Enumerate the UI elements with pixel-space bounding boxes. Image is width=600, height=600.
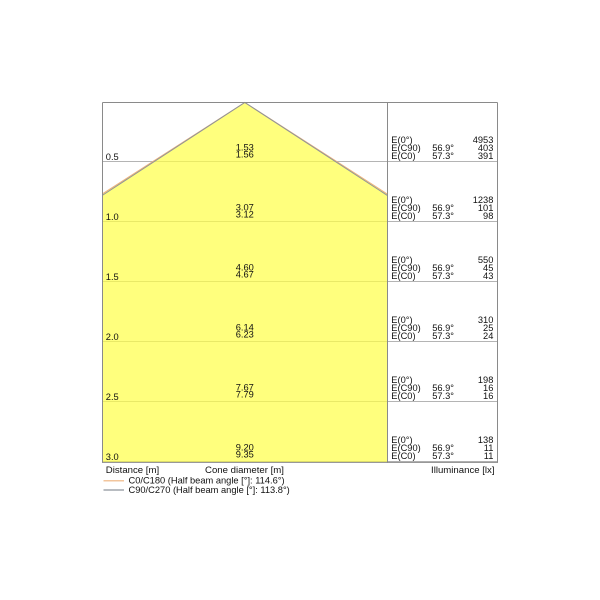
svg-text:C90/C270 (Half beam angle [°]:: C90/C270 (Half beam angle [°]: 113.8°) <box>129 485 290 495</box>
svg-text:43: 43 <box>483 271 493 281</box>
svg-text:E(C0): E(C0) <box>391 331 415 341</box>
svg-text:16: 16 <box>483 391 493 401</box>
svg-text:57.3°: 57.3° <box>432 271 454 281</box>
svg-text:57.3°: 57.3° <box>432 391 454 401</box>
svg-text:2.5: 2.5 <box>106 392 119 402</box>
svg-text:E(C0): E(C0) <box>391 211 415 221</box>
svg-text:E(C0): E(C0) <box>391 151 415 161</box>
svg-text:Illuminance [lx]: Illuminance [lx] <box>431 465 494 476</box>
svg-text:E(C0): E(C0) <box>391 271 415 281</box>
svg-text:3.12: 3.12 <box>236 209 254 219</box>
svg-text:Cone diameter [m]: Cone diameter [m] <box>205 465 284 476</box>
svg-text:98: 98 <box>483 211 493 221</box>
svg-text:7.79: 7.79 <box>236 389 254 399</box>
svg-text:57.3°: 57.3° <box>432 331 454 341</box>
svg-text:57.3°: 57.3° <box>432 211 454 221</box>
svg-text:1.56: 1.56 <box>236 149 254 159</box>
svg-text:E(C0): E(C0) <box>391 391 415 401</box>
svg-text:6.23: 6.23 <box>236 329 254 339</box>
svg-text:9.35: 9.35 <box>236 449 254 459</box>
svg-text:4.67: 4.67 <box>236 269 254 279</box>
svg-text:11: 11 <box>484 451 494 461</box>
svg-text:1.5: 1.5 <box>106 272 119 282</box>
svg-text:391: 391 <box>478 151 494 161</box>
svg-text:57.3°: 57.3° <box>432 151 454 161</box>
svg-text:24: 24 <box>483 331 493 341</box>
svg-text:3.0: 3.0 <box>106 452 119 462</box>
svg-text:Distance [m]: Distance [m] <box>106 465 159 476</box>
svg-text:0.5: 0.5 <box>106 152 119 162</box>
svg-text:57.3°: 57.3° <box>432 451 454 461</box>
svg-text:1.0: 1.0 <box>106 212 119 222</box>
svg-text:2.0: 2.0 <box>106 332 119 342</box>
svg-text:E(C0): E(C0) <box>391 451 415 461</box>
